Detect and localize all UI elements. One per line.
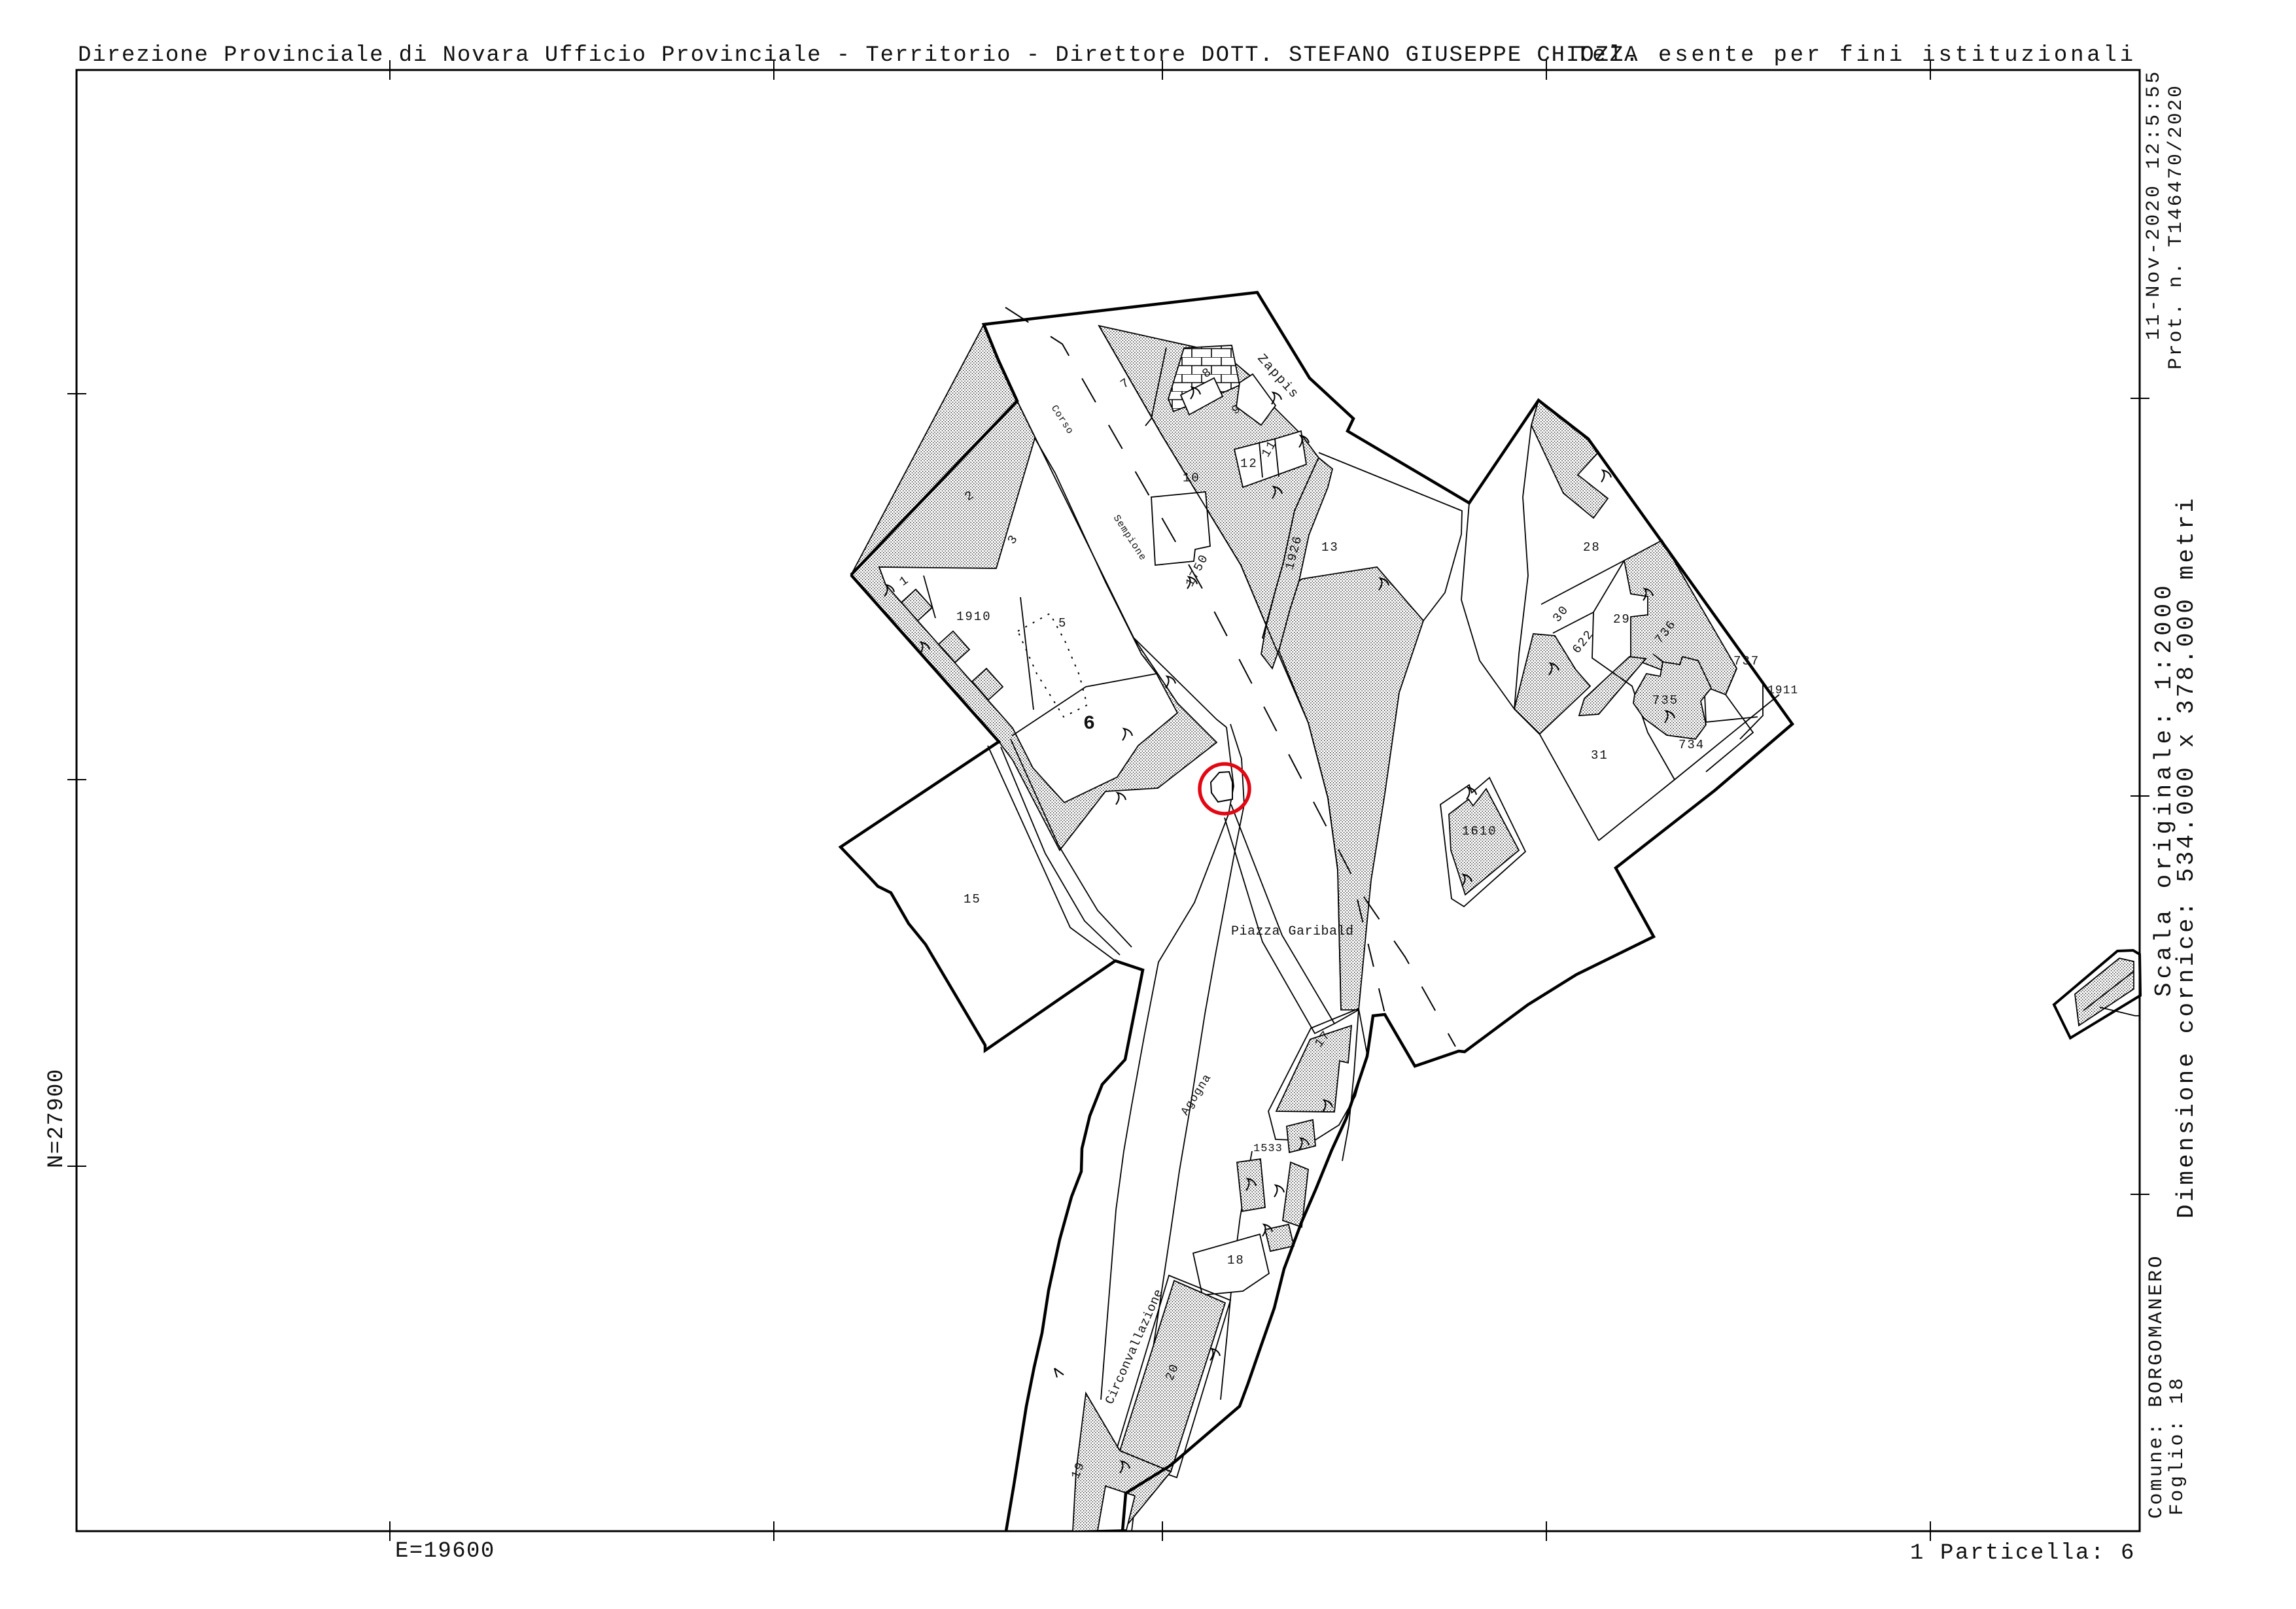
svg-text:Piazza Garibald: Piazza Garibald [1231,924,1354,939]
svg-text:18: 18 [1227,1253,1245,1268]
svg-text:1610: 1610 [1462,824,1497,839]
svg-text:1533: 1533 [1253,1143,1283,1155]
svg-text:N=27900: N=27900 [44,1068,69,1168]
svg-text:13: 13 [1321,540,1339,555]
svg-text:29: 29 [1613,612,1631,627]
svg-text:Direzione Provinciale di Novar: Direzione Provinciale di Novara Ufficio … [78,43,1639,68]
svg-text:735: 735 [1652,693,1679,708]
svg-text:737: 737 [1733,654,1760,668]
svg-text:1 Particella: 6: 1 Particella: 6 [1910,1541,2136,1566]
svg-text:15: 15 [964,892,981,907]
svg-text:1911: 1911 [1767,684,1798,697]
svg-text:1910: 1910 [956,610,992,624]
svg-text:5: 5 [1058,616,1067,631]
svg-text:Prot. n. T146470/2020: Prot. n. T146470/2020 [2165,84,2187,370]
svg-text:28: 28 [1583,540,1601,555]
svg-text:734: 734 [1679,738,1705,752]
svg-text:E=19600: E=19600 [395,1539,495,1564]
svg-text:Dimensione cornice: 534.000 x: Dimensione cornice: 534.000 x 378.000 me… [2173,496,2200,1219]
svg-text:12: 12 [1240,457,1258,471]
svg-text:Comune: BORGOMANERO: Comune: BORGOMANERO [2146,1254,2168,1519]
svg-text:Tel. esente per fini istituzio: Tel. esente per fini istituzionali [1576,43,2136,68]
svg-text:10: 10 [1183,471,1200,485]
svg-text:6: 6 [1083,713,1095,735]
svg-text:31: 31 [1591,748,1609,763]
svg-text:Foglio: 18: Foglio: 18 [2166,1376,2189,1515]
svg-text:11-Nov-2020 12:5:55: 11-Nov-2020 12:5:55 [2143,69,2165,340]
